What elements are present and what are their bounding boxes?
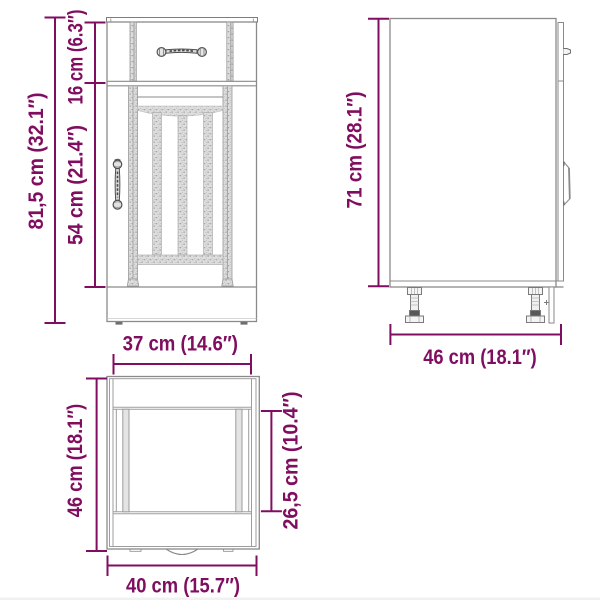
svg-text:54 cm (21.4″): 54 cm (21.4″) — [64, 125, 88, 245]
svg-text:37 cm (14.6″): 37 cm (14.6″) — [123, 332, 238, 356]
svg-text:40 cm (15.7″): 40 cm (15.7″) — [126, 574, 240, 598]
svg-text:26,5 cm (10.4″): 26,5 cm (10.4″) — [279, 392, 303, 530]
svg-text:16 cm (6.3″): 16 cm (6.3″) — [64, 10, 88, 105]
svg-text:81,5 cm (32.1″): 81,5 cm (32.1″) — [24, 93, 48, 230]
svg-text:46 cm (18.1″): 46 cm (18.1″) — [63, 404, 87, 518]
svg-text:46 cm (18.1″): 46 cm (18.1″) — [423, 345, 537, 369]
svg-text:71 cm (28.1″): 71 cm (28.1″) — [343, 92, 367, 209]
